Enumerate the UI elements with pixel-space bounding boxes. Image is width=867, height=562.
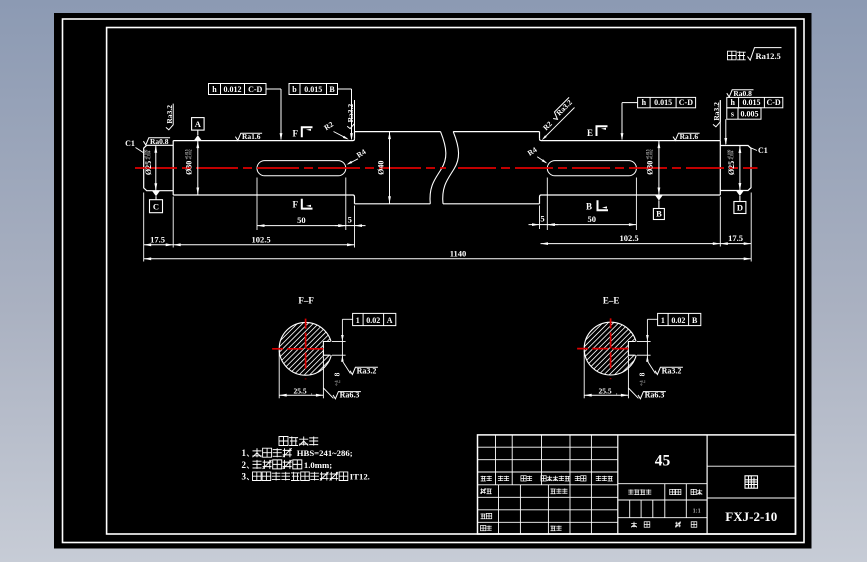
svg-text:B: B [586,201,592,211]
svg-text:E–E: E–E [603,296,620,306]
svg-text:Ra6.3: Ra6.3 [645,391,665,400]
svg-text:A: A [195,119,202,129]
svg-text:0.02: 0.02 [671,316,685,325]
svg-text:+0.002: +0.002 [188,149,192,159]
svg-text:Ra3.2: Ra3.2 [662,366,682,375]
svg-text:Ra3.2: Ra3.2 [712,102,721,121]
svg-text:0.015: 0.015 [654,98,672,107]
svg-text:B: B [692,316,698,325]
svg-text:50: 50 [297,215,306,225]
svg-text:+0.002: +0.002 [649,149,653,159]
svg-text:C-D: C-D [679,98,693,107]
svg-text:17.5: 17.5 [150,234,165,244]
svg-text:0.005: 0.005 [741,110,759,119]
svg-text:17.5: 17.5 [728,233,743,243]
svg-text:s: s [731,110,734,119]
svg-text:F: F [293,129,299,139]
svg-text:0.015: 0.015 [304,85,322,94]
svg-text:Ø25: Ø25 [144,161,153,175]
svg-text:Ra1.6: Ra1.6 [680,132,699,141]
svg-text:Ø30: Ø30 [185,161,194,175]
svg-text:Ø30: Ø30 [646,161,655,175]
svg-text:0.02: 0.02 [366,316,380,325]
svg-text:25.5: 25.5 [599,386,612,395]
svg-text:E: E [587,128,593,138]
svg-text:h: h [642,98,647,107]
svg-text:Ra0.8: Ra0.8 [733,89,752,98]
svg-text:25.5: 25.5 [294,386,307,395]
svg-text:C-D: C-D [766,98,780,107]
svg-text:C1: C1 [758,146,768,155]
svg-text:1: 1 [661,316,665,325]
svg-text:Ra6.3: Ra6.3 [340,391,360,400]
svg-text:1.0mm;: 1.0mm; [304,460,332,470]
svg-text:B: B [656,208,662,218]
svg-text:45: 45 [655,453,671,470]
svg-text:F–F: F–F [298,296,314,306]
svg-text:D: D [737,202,743,212]
svg-text:102.5: 102.5 [619,233,638,243]
svg-text:b: b [292,85,297,94]
svg-text:IT12.: IT12. [350,472,370,482]
svg-text:0.015: 0.015 [743,98,761,107]
svg-text:5: 5 [540,214,544,224]
svg-text:C1: C1 [125,139,135,148]
svg-text:HBS=241~286;: HBS=241~286; [297,448,353,458]
svg-text:Ra3.2: Ra3.2 [357,366,377,375]
svg-text:1:1: 1:1 [692,507,700,514]
svg-text:C: C [153,202,159,212]
svg-text:Ra3.2: Ra3.2 [165,105,174,124]
svg-text:50: 50 [588,214,597,224]
svg-text:102.5: 102.5 [251,234,270,244]
svg-text:-0.004: -0.004 [731,150,735,159]
svg-text:1140: 1140 [450,248,467,258]
svg-text:-0.004: -0.004 [148,150,152,159]
svg-text:h: h [212,85,217,94]
svg-text:C-D: C-D [248,85,262,94]
svg-text:Ra0.8: Ra0.8 [150,137,169,146]
svg-text:B: B [329,85,335,94]
svg-text:FXJ-2-10: FXJ-2-10 [725,509,777,524]
svg-text:Ra3.2: Ra3.2 [346,104,355,123]
svg-text:0.012: 0.012 [224,85,242,94]
svg-text:8: 8 [332,372,341,376]
svg-text:A: A [387,316,393,325]
svg-text:Ra12.5: Ra12.5 [756,51,781,61]
svg-text:F: F [293,199,299,209]
svg-text:8: 8 [637,372,646,376]
svg-text:5: 5 [348,215,352,225]
svg-text:1: 1 [356,316,360,325]
svg-text:Ø40: Ø40 [377,161,386,175]
svg-text:Ø25: Ø25 [727,161,736,175]
svg-text:、: 、 [247,462,254,470]
svg-text:h: h [730,98,735,107]
svg-text:Ra1.6: Ra1.6 [242,132,261,141]
